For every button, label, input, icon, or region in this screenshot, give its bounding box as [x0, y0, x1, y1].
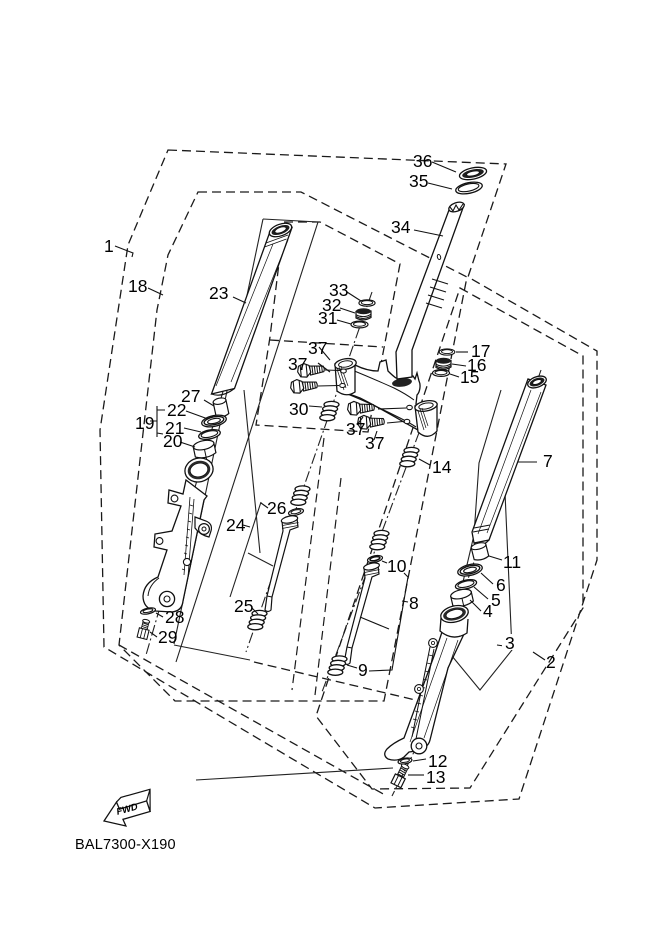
- svg-text:20: 20: [163, 431, 183, 451]
- svg-text:3: 3: [505, 633, 515, 653]
- svg-text:23: 23: [209, 283, 228, 303]
- svg-text:37: 37: [308, 338, 327, 358]
- svg-text:31: 31: [318, 308, 337, 328]
- svg-text:37: 37: [365, 433, 384, 453]
- svg-text:8: 8: [409, 593, 419, 613]
- svg-text:7: 7: [543, 451, 553, 471]
- svg-text:10: 10: [387, 556, 407, 576]
- svg-text:15: 15: [460, 367, 479, 387]
- svg-text:26: 26: [267, 498, 286, 518]
- svg-text:14: 14: [432, 457, 452, 477]
- svg-text:24: 24: [226, 515, 246, 535]
- svg-text:2: 2: [546, 652, 556, 672]
- svg-text:4: 4: [483, 601, 493, 621]
- svg-text:22: 22: [167, 400, 186, 420]
- svg-text:25: 25: [234, 596, 253, 616]
- svg-text:35: 35: [409, 171, 428, 191]
- svg-text:11: 11: [503, 552, 521, 572]
- svg-text:19: 19: [135, 413, 154, 433]
- svg-text:37: 37: [288, 354, 307, 374]
- svg-text:30: 30: [289, 399, 309, 419]
- svg-text:18: 18: [128, 276, 147, 296]
- svg-text:13: 13: [426, 767, 445, 787]
- svg-text:34: 34: [391, 217, 411, 237]
- svg-text:28: 28: [165, 607, 184, 627]
- svg-text:BAL7300-X190: BAL7300-X190: [75, 837, 176, 853]
- svg-text:36: 36: [413, 151, 432, 171]
- svg-text:9: 9: [358, 660, 368, 680]
- svg-text:37: 37: [346, 419, 365, 439]
- svg-text:1: 1: [104, 236, 114, 256]
- svg-text:29: 29: [158, 627, 177, 647]
